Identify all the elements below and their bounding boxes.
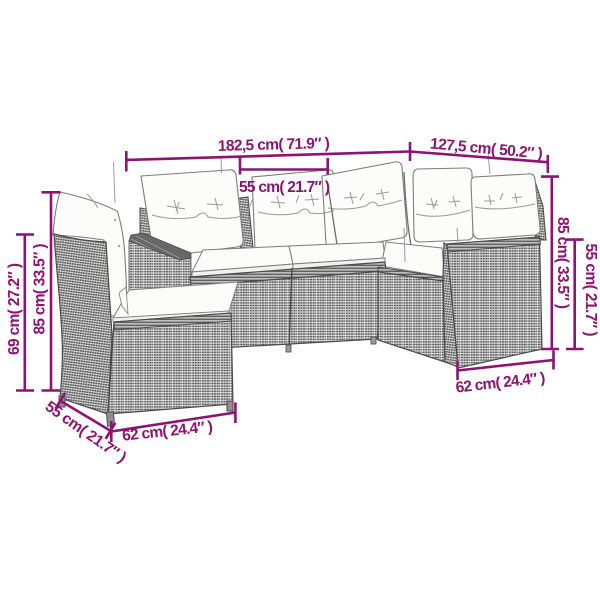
svg-text:85 cm( 33.5″ ): 85 cm( 33.5″ ): [32, 244, 49, 335]
svg-text:182,5 cm( 71.9″ ): 182,5 cm( 71.9″ ): [218, 135, 330, 155]
svg-text:55 cm( 21.7″ ): 55 cm( 21.7″ ): [582, 244, 599, 337]
svg-text:69 cm( 27.2″ ): 69 cm( 27.2″ ): [6, 263, 23, 355]
svg-text:55 cm( 21.7″ ): 55 cm( 21.7″ ): [239, 179, 330, 196]
svg-text:85 cm( 33.5″ ): 85 cm( 33.5″ ): [554, 217, 571, 309]
